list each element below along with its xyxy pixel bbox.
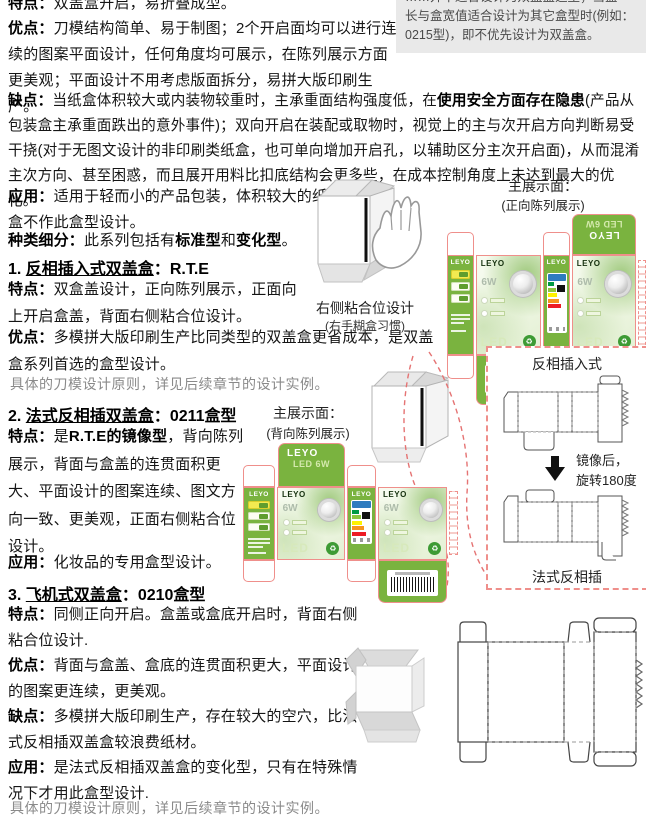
side-panel-swatches: LEYO	[243, 487, 275, 560]
label-yingyong: 应用：	[8, 188, 54, 205]
caption-glue-side: 右侧粘合位设计	[295, 298, 435, 318]
note-box-line1: ……并不适合设计为双盖盒造型；当盒	[405, 0, 646, 7]
label-s3-tedian: 特点：	[8, 606, 54, 623]
label-s3-youdian: 优点：	[8, 657, 54, 674]
text-s3-tedian: 同侧正向开启。盒盖或盒底开启时，背面右侧粘合位设计.	[8, 606, 358, 649]
leyo-logo: LEYO	[244, 491, 274, 498]
label-s1-youdian: 优点：	[8, 329, 54, 346]
eco-badge-icon: ♻	[428, 542, 441, 555]
label-tedian: 特点：	[8, 0, 54, 12]
led-lamp-image	[420, 499, 442, 521]
paragraph-s3-tedian: 特点：同侧正向开启。盒盖或盒底开启时，背面右侧粘合位设计.	[8, 602, 358, 654]
led-lamp-image	[318, 499, 340, 521]
leyo-logo: LEYO	[279, 448, 344, 459]
lid-flap-rotated: LEYO LED 6W	[572, 214, 636, 255]
front-panel: LEYO 6W LED ♻	[476, 255, 541, 355]
color-chip	[248, 523, 270, 531]
box-3d-with-hand-illustration	[306, 174, 432, 298]
leyo-logo: LEYO	[282, 490, 306, 499]
leyo-logo: LEYO	[348, 491, 375, 498]
leyo-logo: LEYO	[573, 229, 635, 240]
text-yingyong: 适用于轻而小的产品包装，体积较大的纸盒不作此盒型设计。	[8, 188, 327, 231]
text-s2-tedian-2: ，背向陈列展示，背面与盒盖的连贯面积更大、平面设计的图案连续、图文方向一致、更美…	[8, 428, 243, 555]
dust-flap	[243, 465, 275, 487]
note-s3: 具体的刀模设计原则，详见后续章节的设计实例。	[10, 798, 329, 818]
glue-flap	[638, 260, 646, 350]
caption-glue-side-sub: (右手糊盒习惯)	[295, 317, 435, 334]
text-s2-tedian-bold: R.T.E的镜像型	[69, 428, 167, 445]
display2-title: 主展示面：	[248, 403, 368, 423]
front-panel: LEYO 6W LED ♻	[378, 487, 447, 560]
text-zhonglei-bold2: 变化型	[236, 232, 282, 249]
document-page: 特点：双盖盒开启，易折叠成型。 优点：刀模结构简单、易于制图；2个开启面均可以进…	[0, 0, 646, 821]
barcode	[387, 570, 438, 596]
label-s2-yingyong: 应用：	[8, 554, 54, 571]
label-zhonglei: 种类细分：	[8, 232, 84, 249]
text-s2-yingyong: 化妆品的专用盒型设计。	[54, 554, 221, 571]
text-s3-youdian: 背面与盒盖、盒底的连贯面积更大，平面设计的图案更连续，更美观。	[8, 657, 358, 700]
panel-title: 反相插入式	[488, 354, 646, 374]
display1-sub: (正向陈列展示)	[478, 195, 608, 214]
led-lamp-image	[510, 271, 536, 297]
panel-bottom-label: 法式反相插	[488, 567, 646, 587]
dieline-0211-printed: LEYO LED 6W LEYO LEYO 6W LED ♻ LEYO	[243, 443, 461, 603]
text-quedian-bold: 使用安全方面存在隐患	[437, 93, 585, 109]
side-panel-swatches: LEYO	[447, 255, 474, 355]
display2-sub: (背向陈列展示)	[243, 423, 373, 442]
paragraph-s1-tedian: 特点：双盒盖设计，正向陈列展示，正面向上开启盒盖，背面右侧粘合位设计。	[8, 276, 310, 330]
note-s1: 具体的刀模设计原则，详见后续章节的设计实例。	[10, 374, 329, 394]
power-label: 6W	[481, 277, 496, 288]
color-chip	[451, 294, 470, 303]
led-text: LED	[383, 541, 410, 555]
leyo-logo: LEYO	[448, 259, 473, 266]
side-panel-energy: LEYO	[543, 255, 570, 355]
back-panel: LEYO 6W LED ♻	[277, 487, 345, 560]
led-text: LED	[282, 541, 309, 555]
text-zhonglei-1: 此系列包括有	[84, 232, 175, 249]
leyo-logo: LEYO	[544, 259, 569, 266]
leyo-logo: LEYO	[577, 259, 601, 268]
glue-flap	[449, 491, 458, 555]
leyo-logo: LEYO	[481, 259, 505, 268]
energy-label	[351, 500, 373, 544]
dust-flap	[347, 560, 376, 582]
display1-title: 主展示面：	[478, 176, 608, 196]
leyo-logo: LEYO	[383, 490, 407, 499]
label-s3-yingyong: 应用：	[8, 759, 54, 776]
color-chip	[451, 282, 470, 291]
paragraph-s2-tedian: 特点：是R.T.E的镜像型，背向陈列展示，背面与盒盖的连贯面积更大、平面设计的图…	[8, 423, 244, 561]
back-panel: LEYO 6W LED ♻	[572, 255, 636, 355]
note-box-line3: 0215型)，即不优先设计为双盖盒。	[405, 26, 646, 45]
mirror-note-line1: 镜像后，	[576, 451, 637, 471]
text-s3-yingyong: 是法式反相插双盖盒的变化型，只有在特殊情况下才用此盒型设计.	[8, 759, 358, 802]
text-zhonglei-3: 。	[282, 232, 297, 249]
paragraph-s3-quedian: 缺点：多模拼大版印刷生产，存在较大的空穴，比法式反相插双盖盒较浪费纸材。	[8, 704, 358, 756]
note-box-line2: 长与盒宽值适合设计为其它盒型时(例如：	[405, 7, 646, 26]
dust-flap	[243, 560, 275, 582]
barcode-flap	[378, 560, 447, 603]
power-label: 6W	[577, 277, 592, 288]
color-chip	[451, 270, 470, 279]
dieline-french-drawing	[500, 486, 634, 566]
text-quedian-1: 当纸盒体积较大或内装物较重时，主承重面结构强度低，在	[52, 93, 437, 109]
label-s1-tedian: 特点：	[8, 281, 54, 298]
power-label: 6W	[283, 503, 298, 514]
leyo-model: LED 6W	[279, 459, 344, 469]
energy-label	[547, 273, 567, 334]
side-panel-energy: LEYO	[347, 487, 376, 560]
paragraph-tedian-intro: 特点：双盖盒开启，易折叠成型。	[8, 0, 408, 16]
color-chip	[248, 512, 270, 520]
mirror-note: 镜像后， 旋转180度	[576, 451, 637, 491]
dust-flap	[347, 465, 376, 487]
paragraph-s2-yingyong: 应用：化妆品的专用盒型设计。	[8, 550, 268, 575]
label-quedian: 缺点：	[8, 93, 52, 109]
leyo-model: LED 6W	[573, 219, 635, 229]
text-zhonglei-2: 和	[221, 232, 236, 249]
dust-flap	[447, 232, 474, 256]
color-chip	[248, 501, 270, 509]
label-s2-tedian: 特点：	[8, 428, 54, 445]
opened-box-3d-gray	[340, 632, 434, 748]
dust-flap	[543, 232, 570, 256]
note-box: ……并不适合设计为双盖盒造型；当盒 长与盒宽值适合设计为其它盒型时(例如： 02…	[396, 0, 646, 53]
dieline-0210-drawing	[448, 612, 646, 772]
power-label: 6W	[384, 503, 399, 514]
paragraph-s3-youdian: 优点：背面与盒盖、盒底的连贯面积更大，平面设计的图案更连续，更美观。	[8, 653, 358, 705]
text-zhonglei-bold1: 标准型	[175, 232, 221, 249]
text-s2-tedian-1: 是	[54, 428, 69, 445]
led-lamp-image	[605, 271, 631, 297]
text-tedian: 双盖盒开启，易折叠成型。	[54, 0, 236, 12]
label-s3-quedian: 缺点：	[8, 708, 54, 725]
text-s3-quedian: 多模拼大版印刷生产，存在较大的空穴，比法式反相插双盖盒较浪费纸材。	[8, 708, 358, 751]
label-youdian: 优点：	[8, 20, 54, 37]
down-arrow-icon	[544, 456, 566, 482]
lid-flap: LEYO LED 6W	[278, 443, 345, 487]
dieline-rte-drawing	[500, 374, 634, 454]
mirror-instruction-panel: 反相插入式 镜像后， 旋转180度	[486, 346, 646, 590]
eco-badge-icon: ♻	[326, 542, 339, 555]
